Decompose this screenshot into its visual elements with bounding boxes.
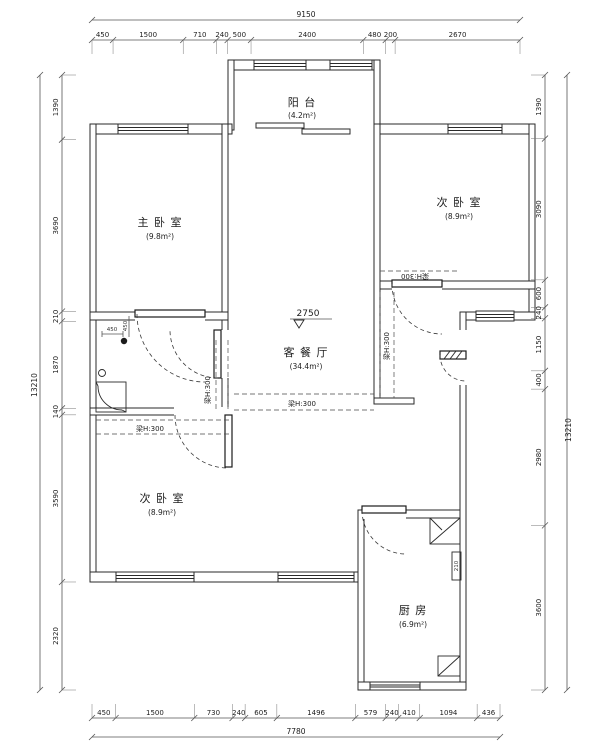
dim-label: 410	[402, 709, 415, 717]
dim-label: 200	[384, 31, 397, 39]
room-label-master: 主 卧 室	[138, 215, 183, 229]
dim-label: 2320	[52, 627, 60, 645]
beam-living-bottom: 梁H:300	[234, 394, 374, 410]
floor-plan-canvas: 梁H:300 梁H:300 梁H:300 梁H:300 梁H:300 450 4…	[0, 0, 600, 756]
door-openings	[135, 123, 467, 519]
dim-label: 240	[535, 306, 543, 319]
dim-label: 3090	[535, 200, 543, 218]
bedroom2-window	[448, 124, 502, 134]
beam-entry-vertical: 梁H:300	[380, 292, 394, 398]
bath-fixture-circle	[99, 370, 106, 377]
room-area-kitchen: (6.9m²)	[399, 620, 427, 629]
floor-plan-page: 梁H:300 梁H:300 梁H:300 梁H:300 梁H:300 450 4…	[0, 0, 600, 756]
room-area-bedroom3: (8.9m²)	[148, 508, 176, 517]
dim-label: 240	[385, 709, 398, 717]
entry-window	[476, 311, 514, 321]
master-window	[118, 124, 188, 134]
room-area-balcony: (4.2m²)	[288, 111, 316, 120]
dim-label: 1500	[139, 31, 157, 39]
beam-label: 梁H:300	[382, 332, 391, 360]
dim-label: 1390	[52, 98, 60, 116]
dim-label: 450	[96, 31, 109, 39]
dim-label: 3590	[52, 490, 60, 508]
dim-label: 1390	[535, 98, 543, 116]
kitchen-corner-box	[438, 656, 460, 676]
dim-label: 605	[254, 709, 267, 717]
room-area-living: (34.4m²)	[290, 362, 323, 371]
room-label-living: 客 餐 厅	[284, 345, 329, 359]
dim-label: 13210	[30, 373, 39, 397]
dim-label: 480	[368, 31, 381, 39]
level-value: 2750	[297, 309, 320, 319]
room-area-master: (9.8m²)	[146, 232, 174, 241]
dim-label: 2670	[449, 31, 467, 39]
room-label-kitchen: 厨 房	[399, 604, 428, 617]
dim-label: 1150	[535, 336, 543, 354]
dim-label: 1094	[440, 709, 458, 717]
level-mark: 2750	[290, 309, 332, 328]
hall-door	[170, 330, 221, 378]
dim-label: 140	[52, 405, 60, 418]
walls	[90, 60, 535, 690]
dim-label: 7780	[286, 727, 305, 736]
dim-label: 3600	[535, 599, 543, 617]
dim-label: 210	[52, 310, 60, 323]
dim-label: 3690	[52, 217, 60, 235]
windows	[116, 60, 514, 690]
room-labels: 阳 台 (4.2m²) 主 卧 室 (9.8m²) 次 卧 室 (8.9m²) …	[138, 95, 482, 629]
beam-label: 梁H:300	[288, 399, 316, 408]
room-label-bedroom2: 次 卧 室	[437, 195, 482, 209]
beam-label: 梁H:300	[136, 424, 164, 433]
kitchen-window	[370, 682, 420, 690]
dim-label: 500	[233, 31, 246, 39]
dim-label: 710	[193, 31, 206, 39]
bedroom3-door	[175, 415, 232, 468]
dim-label: 13210	[564, 418, 573, 442]
dim-label: 400	[535, 373, 543, 386]
beam-label: 梁H:300	[401, 272, 429, 281]
dim-label: 579	[364, 709, 377, 717]
dim-label: 436	[482, 709, 496, 717]
room-label-balcony: 阳 台	[288, 95, 317, 109]
kitchen-flue	[430, 518, 460, 544]
bedroom3-window	[116, 572, 194, 582]
balcony-window-right	[330, 60, 372, 70]
dim-label: 730	[207, 709, 220, 717]
dim-label: 1500	[146, 709, 164, 717]
niche-dim-210: 210	[454, 560, 460, 571]
kitchen-door	[362, 506, 406, 554]
dim-label: 2400	[298, 31, 316, 39]
dim-label: 240	[215, 31, 228, 39]
balcony-window-left	[254, 60, 306, 70]
dining-window	[278, 572, 354, 582]
drain-dim-450-v: 450	[123, 320, 129, 331]
dim-label: 600	[535, 287, 543, 300]
dim-label: 2980	[535, 448, 543, 466]
dim-label: 1870	[52, 356, 60, 374]
dim-label: 450	[97, 709, 110, 717]
drain-dim-450: 450	[107, 327, 118, 333]
dim-label: 9150	[296, 10, 315, 19]
dim-label: 1496	[307, 709, 325, 717]
dim-label: 240	[232, 709, 245, 717]
beam-bedroom3-top: 梁H:300	[96, 420, 230, 434]
room-area-bedroom2: (8.9m²)	[445, 212, 473, 221]
beam-label: 梁H:300	[203, 376, 212, 404]
room-label-bedroom3: 次 卧 室	[140, 491, 185, 505]
